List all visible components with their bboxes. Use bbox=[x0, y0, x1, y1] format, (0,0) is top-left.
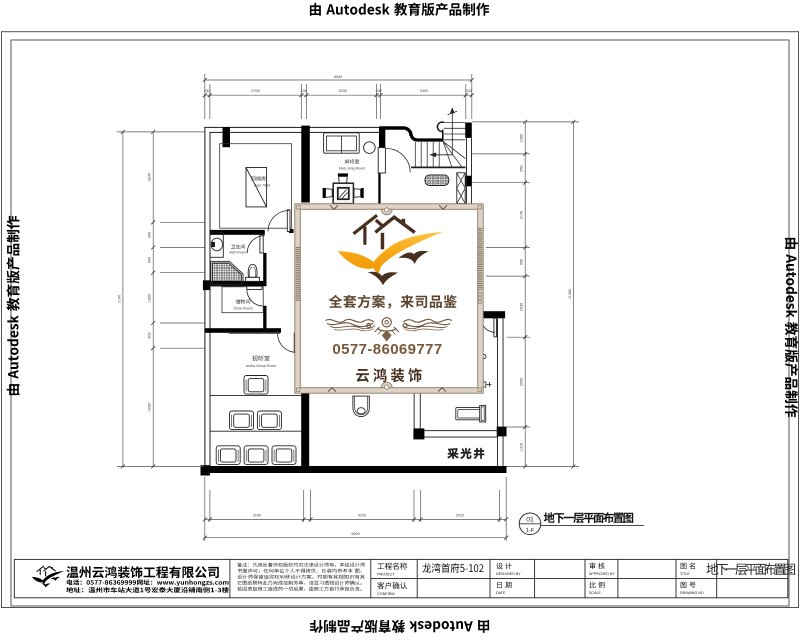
svg-text:2030: 2030 bbox=[520, 303, 524, 311]
svg-text:1800: 1800 bbox=[148, 294, 152, 302]
svg-text:3240: 3240 bbox=[148, 173, 152, 181]
svg-text:2030: 2030 bbox=[339, 89, 347, 93]
svg-text:01: 01 bbox=[526, 517, 534, 524]
svg-text:2140: 2140 bbox=[520, 211, 524, 219]
svg-text:240: 240 bbox=[466, 89, 472, 93]
svg-text:900: 900 bbox=[148, 232, 152, 238]
svg-text:2990: 2990 bbox=[520, 378, 524, 386]
svg-text:TITLE: TITLE bbox=[680, 572, 690, 576]
svg-text:Store Room: Store Room bbox=[233, 307, 252, 311]
svg-text:900: 900 bbox=[148, 332, 152, 338]
svg-text:Bath Room: Bath Room bbox=[230, 251, 247, 255]
svg-text:4100: 4100 bbox=[358, 514, 366, 518]
svg-text:3100: 3100 bbox=[253, 514, 261, 518]
svg-text:DRAWING NO: DRAWING NO bbox=[680, 591, 704, 595]
svg-text:6940: 6940 bbox=[334, 75, 342, 79]
svg-text:SCALE: SCALE bbox=[589, 591, 601, 595]
svg-text:1060: 1060 bbox=[520, 134, 524, 142]
svg-text:950: 950 bbox=[520, 165, 524, 171]
svg-text:2700: 2700 bbox=[251, 89, 259, 93]
svg-text:0577-86069777: 0577-86069777 bbox=[332, 341, 442, 358]
svg-text:130: 130 bbox=[301, 89, 307, 93]
svg-text:9900: 9900 bbox=[351, 532, 359, 536]
svg-text:7140: 7140 bbox=[117, 295, 121, 303]
svg-text:APPROVED BY: APPROVED BY bbox=[589, 572, 615, 576]
svg-text:11480: 11480 bbox=[568, 289, 572, 299]
svg-text:1-F: 1-F bbox=[526, 528, 535, 534]
svg-text:DESIGNED BY: DESIGNED BY bbox=[496, 572, 521, 576]
svg-text:Mah Jong Room: Mah Jong Room bbox=[339, 167, 365, 171]
svg-text:Ayer Villa: Ayer Villa bbox=[254, 184, 271, 188]
svg-text:Audio-Visual Room: Audio-Visual Room bbox=[246, 364, 277, 368]
svg-text:DATE: DATE bbox=[496, 591, 506, 595]
svg-text:4260: 4260 bbox=[148, 403, 152, 411]
svg-text:CONFIRM: CONFIRM bbox=[377, 592, 395, 596]
svg-text:240: 240 bbox=[204, 89, 210, 93]
svg-text:900: 900 bbox=[148, 257, 152, 263]
svg-text:PROJECT: PROJECT bbox=[377, 573, 395, 577]
svg-text:1310: 1310 bbox=[520, 443, 524, 451]
svg-text:2510: 2510 bbox=[456, 514, 464, 518]
svg-text:2400: 2400 bbox=[420, 89, 428, 93]
svg-text:130: 130 bbox=[375, 89, 381, 93]
svg-text:950: 950 bbox=[520, 259, 524, 265]
